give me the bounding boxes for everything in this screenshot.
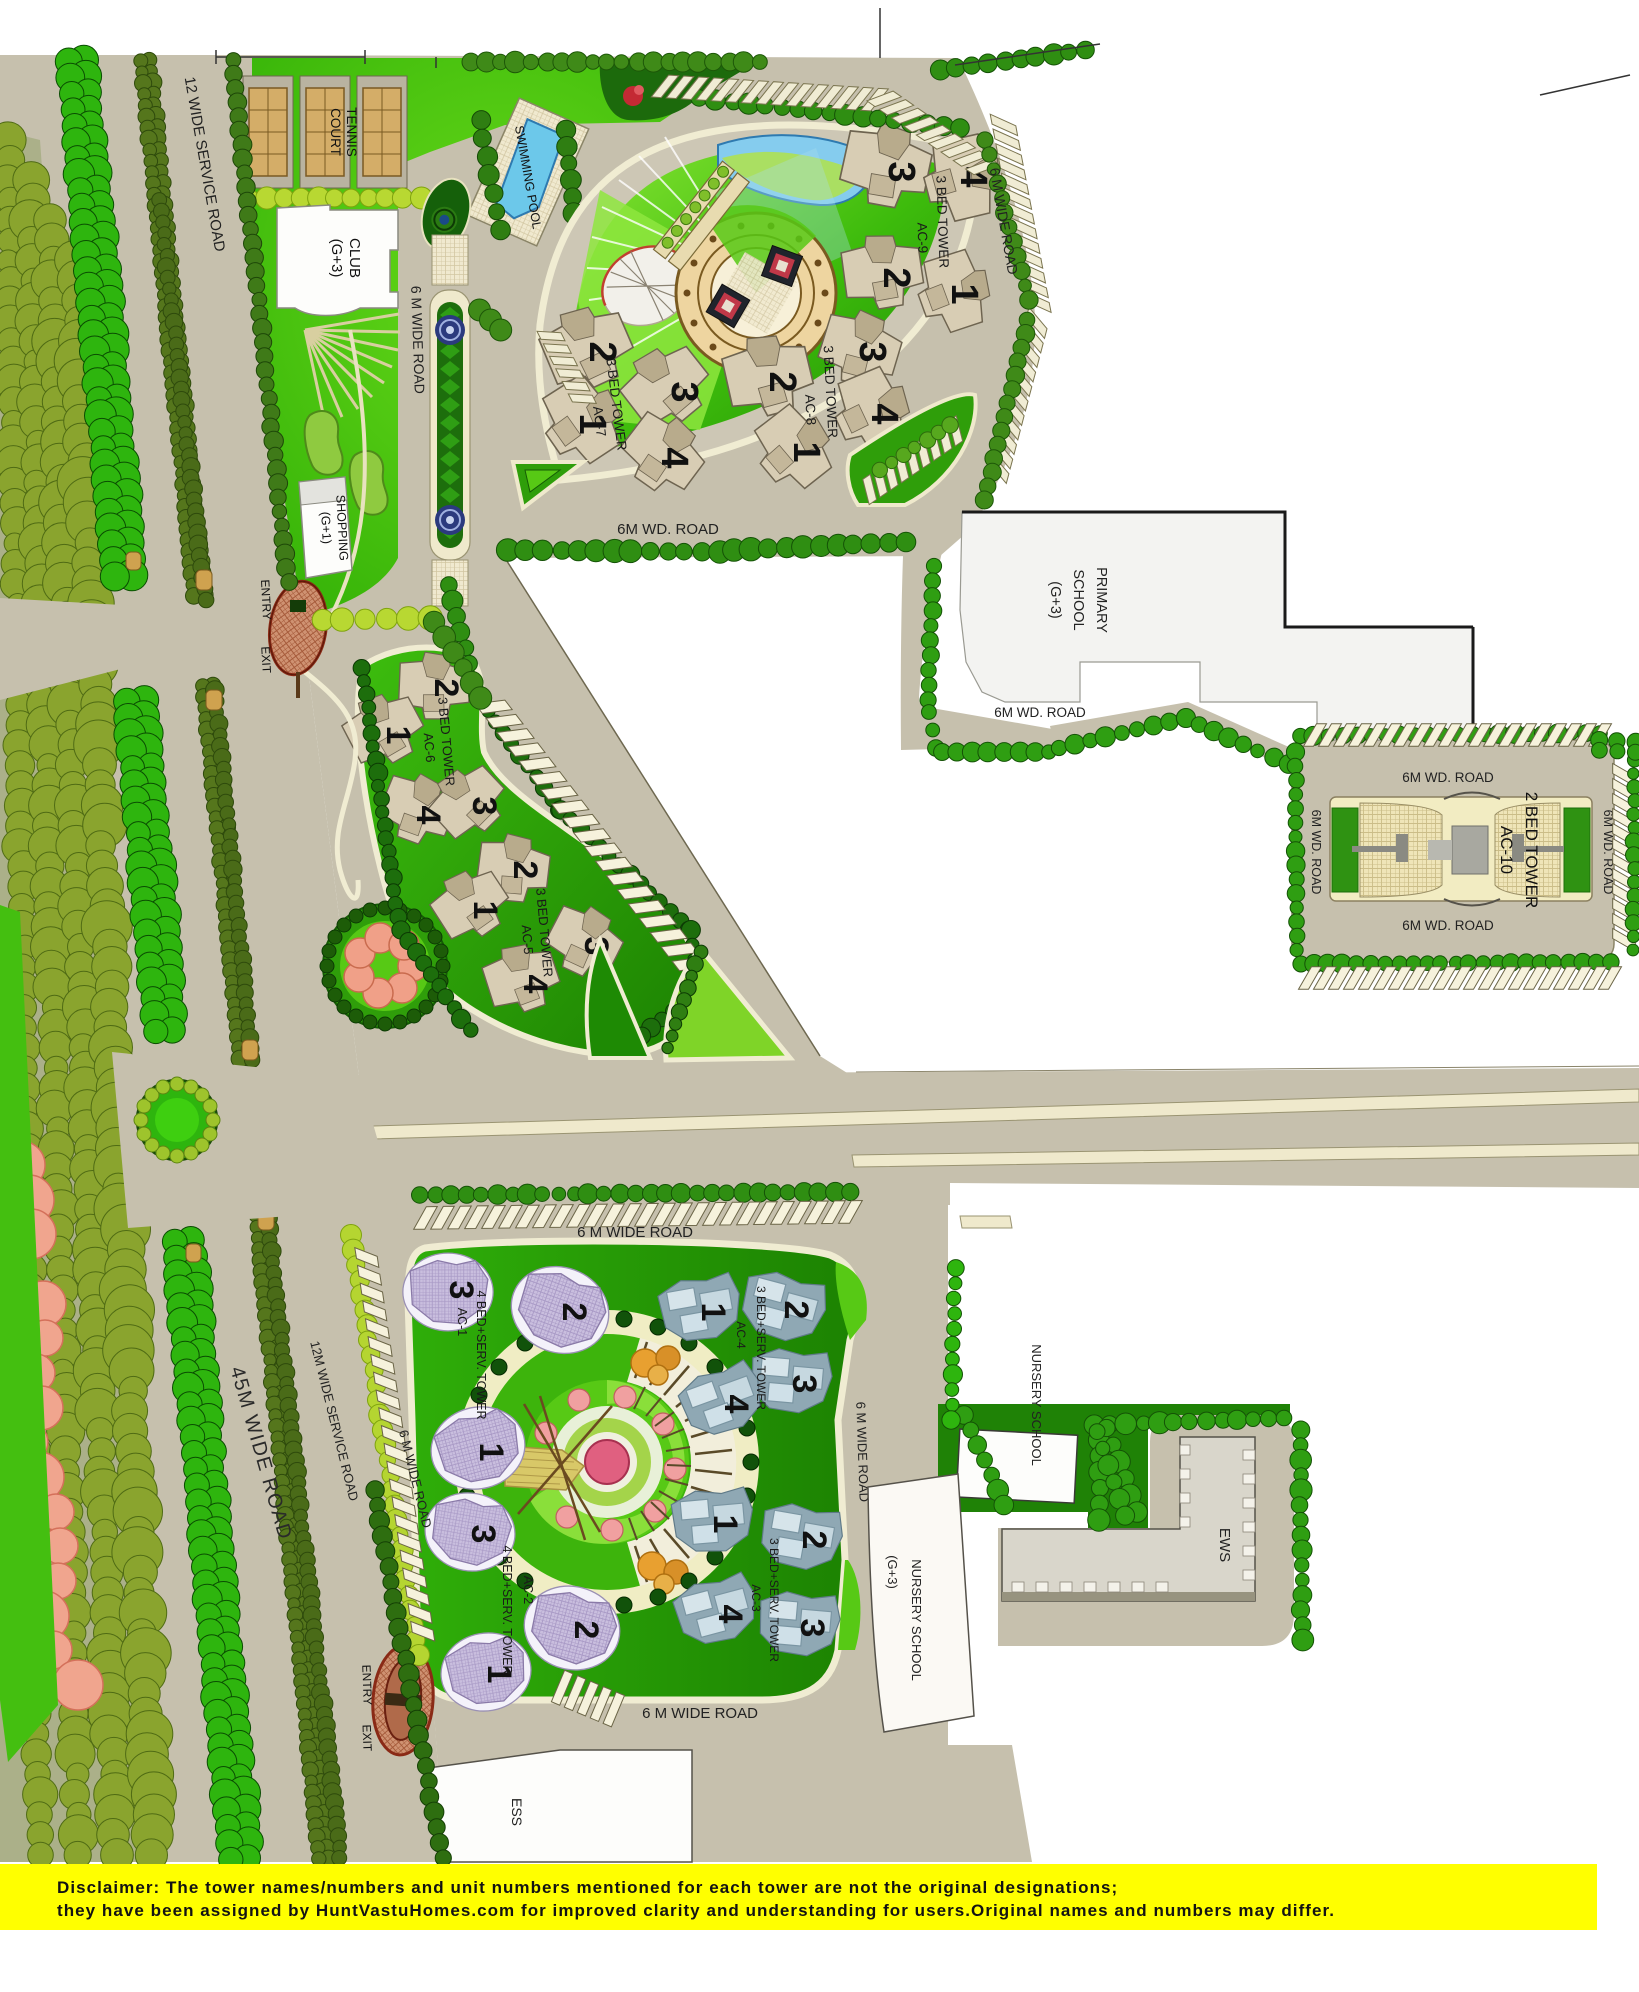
svg-text:6M WD. ROAD: 6M WD. ROAD [1402, 770, 1494, 785]
svg-text:TENNIS: TENNIS [344, 107, 359, 157]
svg-text:1: 1 [943, 283, 985, 304]
svg-text:COURT: COURT [328, 108, 343, 156]
svg-text:4 BED+SERV. TOWER: 4 BED+SERV. TOWER [500, 1545, 514, 1674]
svg-text:3: 3 [464, 1525, 502, 1544]
svg-text:2: 2 [567, 1621, 605, 1640]
svg-text:EXIT: EXIT [360, 1724, 375, 1752]
svg-text:1: 1 [472, 1443, 510, 1462]
svg-text:6M WD. ROAD: 6M WD. ROAD [617, 521, 719, 538]
svg-text:AC-4: AC-4 [734, 1321, 748, 1349]
svg-text:AC-10: AC-10 [1497, 826, 1516, 874]
svg-text:4: 4 [653, 447, 695, 468]
svg-text:4: 4 [863, 403, 905, 424]
svg-text:6 M WIDE ROAD: 6 M WIDE ROAD [642, 1705, 758, 1722]
svg-text:3: 3 [785, 1375, 823, 1394]
svg-text:PRIMARY: PRIMARY [1093, 567, 1109, 633]
svg-text:2: 2 [777, 1301, 815, 1320]
svg-text:4: 4 [409, 806, 447, 825]
svg-text:6M WD. ROAD: 6M WD. ROAD [994, 705, 1086, 720]
svg-text:3: 3 [465, 797, 503, 816]
svg-text:(G+3): (G+3) [1047, 581, 1063, 618]
svg-text:3: 3 [663, 381, 705, 402]
svg-text:CLUB: CLUB [346, 238, 363, 278]
svg-text:1: 1 [466, 901, 504, 920]
svg-text:ENTRY: ENTRY [258, 579, 274, 620]
svg-text:2: 2 [506, 861, 544, 880]
svg-text:2 BED TOWER: 2 BED TOWER [1522, 792, 1541, 909]
svg-text:they have been assigned by Hun: they have been assigned by HuntVastuHome… [57, 1901, 1335, 1920]
svg-text:1: 1 [694, 1303, 732, 1322]
svg-text:2: 2 [555, 1303, 593, 1322]
svg-text:ENTRY: ENTRY [359, 1664, 374, 1705]
svg-text:(G+1): (G+1) [318, 511, 334, 544]
svg-text:1: 1 [785, 441, 827, 462]
svg-text:AC-3: AC-3 [749, 1584, 763, 1612]
svg-text:2: 2 [761, 371, 803, 392]
svg-text:AC-5: AC-5 [519, 924, 537, 955]
svg-text:ESS: ESS [509, 1798, 525, 1826]
svg-text:Disclaimer: The tower names/nu: Disclaimer: The tower names/numbers and … [57, 1878, 1118, 1897]
svg-text:AC-8: AC-8 [802, 394, 819, 426]
svg-text:4: 4 [711, 1605, 749, 1624]
svg-text:3 BED+SERV. TOWER: 3 BED+SERV. TOWER [767, 1538, 781, 1662]
svg-text:EWS: EWS [1216, 1528, 1233, 1562]
svg-text:(G+3): (G+3) [885, 1555, 900, 1589]
svg-text:4: 4 [516, 975, 554, 994]
svg-text:2: 2 [795, 1531, 833, 1550]
svg-text:4 BED+SERV. TOWER: 4 BED+SERV. TOWER [474, 1290, 488, 1419]
svg-text:3: 3 [880, 161, 922, 182]
svg-text:NURSERY SCHOOL: NURSERY SCHOOL [1029, 1344, 1044, 1466]
svg-text:1: 1 [706, 1515, 744, 1534]
svg-text:6M WD. ROAD: 6M WD. ROAD [1601, 810, 1615, 895]
svg-text:(G+3): (G+3) [328, 239, 345, 278]
svg-text:4: 4 [717, 1395, 755, 1414]
svg-text:6M WD. ROAD: 6M WD. ROAD [1402, 918, 1494, 933]
svg-text:AC-9: AC-9 [914, 222, 930, 253]
svg-text:2: 2 [427, 679, 465, 698]
svg-text:NURSERY SCHOOL: NURSERY SCHOOL [909, 1559, 924, 1681]
svg-text:3 BED+SERV. TOWER: 3 BED+SERV. TOWER [754, 1286, 768, 1410]
svg-text:AC-2: AC-2 [521, 1576, 535, 1605]
svg-text:1: 1 [379, 726, 417, 745]
svg-text:SCHOOL: SCHOOL [1070, 569, 1086, 630]
svg-text:6M WD. ROAD: 6M WD. ROAD [1309, 810, 1323, 895]
svg-text:2: 2 [875, 267, 917, 288]
svg-text:3: 3 [793, 1619, 831, 1638]
svg-text:AC-1: AC-1 [455, 1308, 469, 1337]
svg-text:AC-6: AC-6 [421, 732, 439, 763]
svg-text:EXIT: EXIT [258, 646, 273, 674]
svg-text:3: 3 [851, 341, 893, 362]
